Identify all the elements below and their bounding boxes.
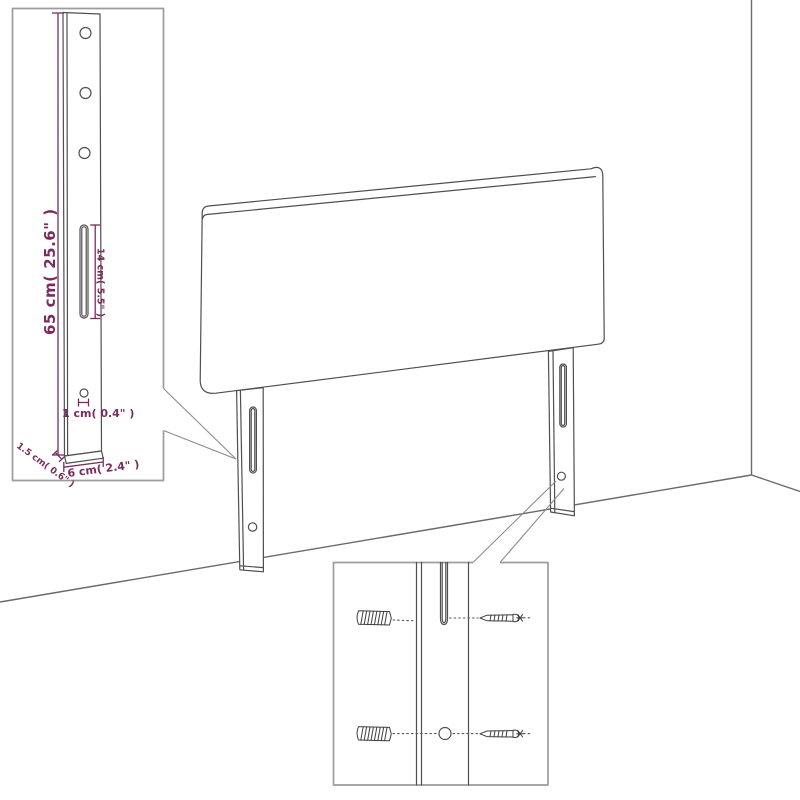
left-callout-wedge xyxy=(164,389,237,460)
left-callout-box: 65 cm( 25.6" ) 14 cm( 5.5" ) 1 cm( 0.4" … xyxy=(13,9,164,490)
bottom-callout-box xyxy=(334,563,549,786)
left-wedge-line-bottom xyxy=(164,431,237,460)
left-wedge-line-top xyxy=(164,389,237,460)
panel-outline xyxy=(200,167,604,393)
diagram-canvas: 65 cm( 25.6" ) 14 cm( 5.5" ) 1 cm( 0.4" … xyxy=(0,0,800,800)
headboard-right-leg xyxy=(548,348,574,516)
diagram-svg: 65 cm( 25.6" ) 14 cm( 5.5" ) 1 cm( 0.4" … xyxy=(0,0,800,800)
magnified-bracket xyxy=(63,13,103,464)
bottom-wedge-line-right xyxy=(500,489,564,563)
bottom-wedge-line-left xyxy=(473,481,556,563)
headboard-left-leg xyxy=(237,388,264,572)
dim-14-label: 14 cm( 5.5" ) xyxy=(95,248,106,317)
bracket-edge-line xyxy=(67,14,68,456)
dim-1-label: 1 cm( 0.4" ) xyxy=(62,407,134,420)
headboard-panel xyxy=(200,167,604,393)
dim-65-label: 65 cm( 25.6" ) xyxy=(41,208,59,335)
